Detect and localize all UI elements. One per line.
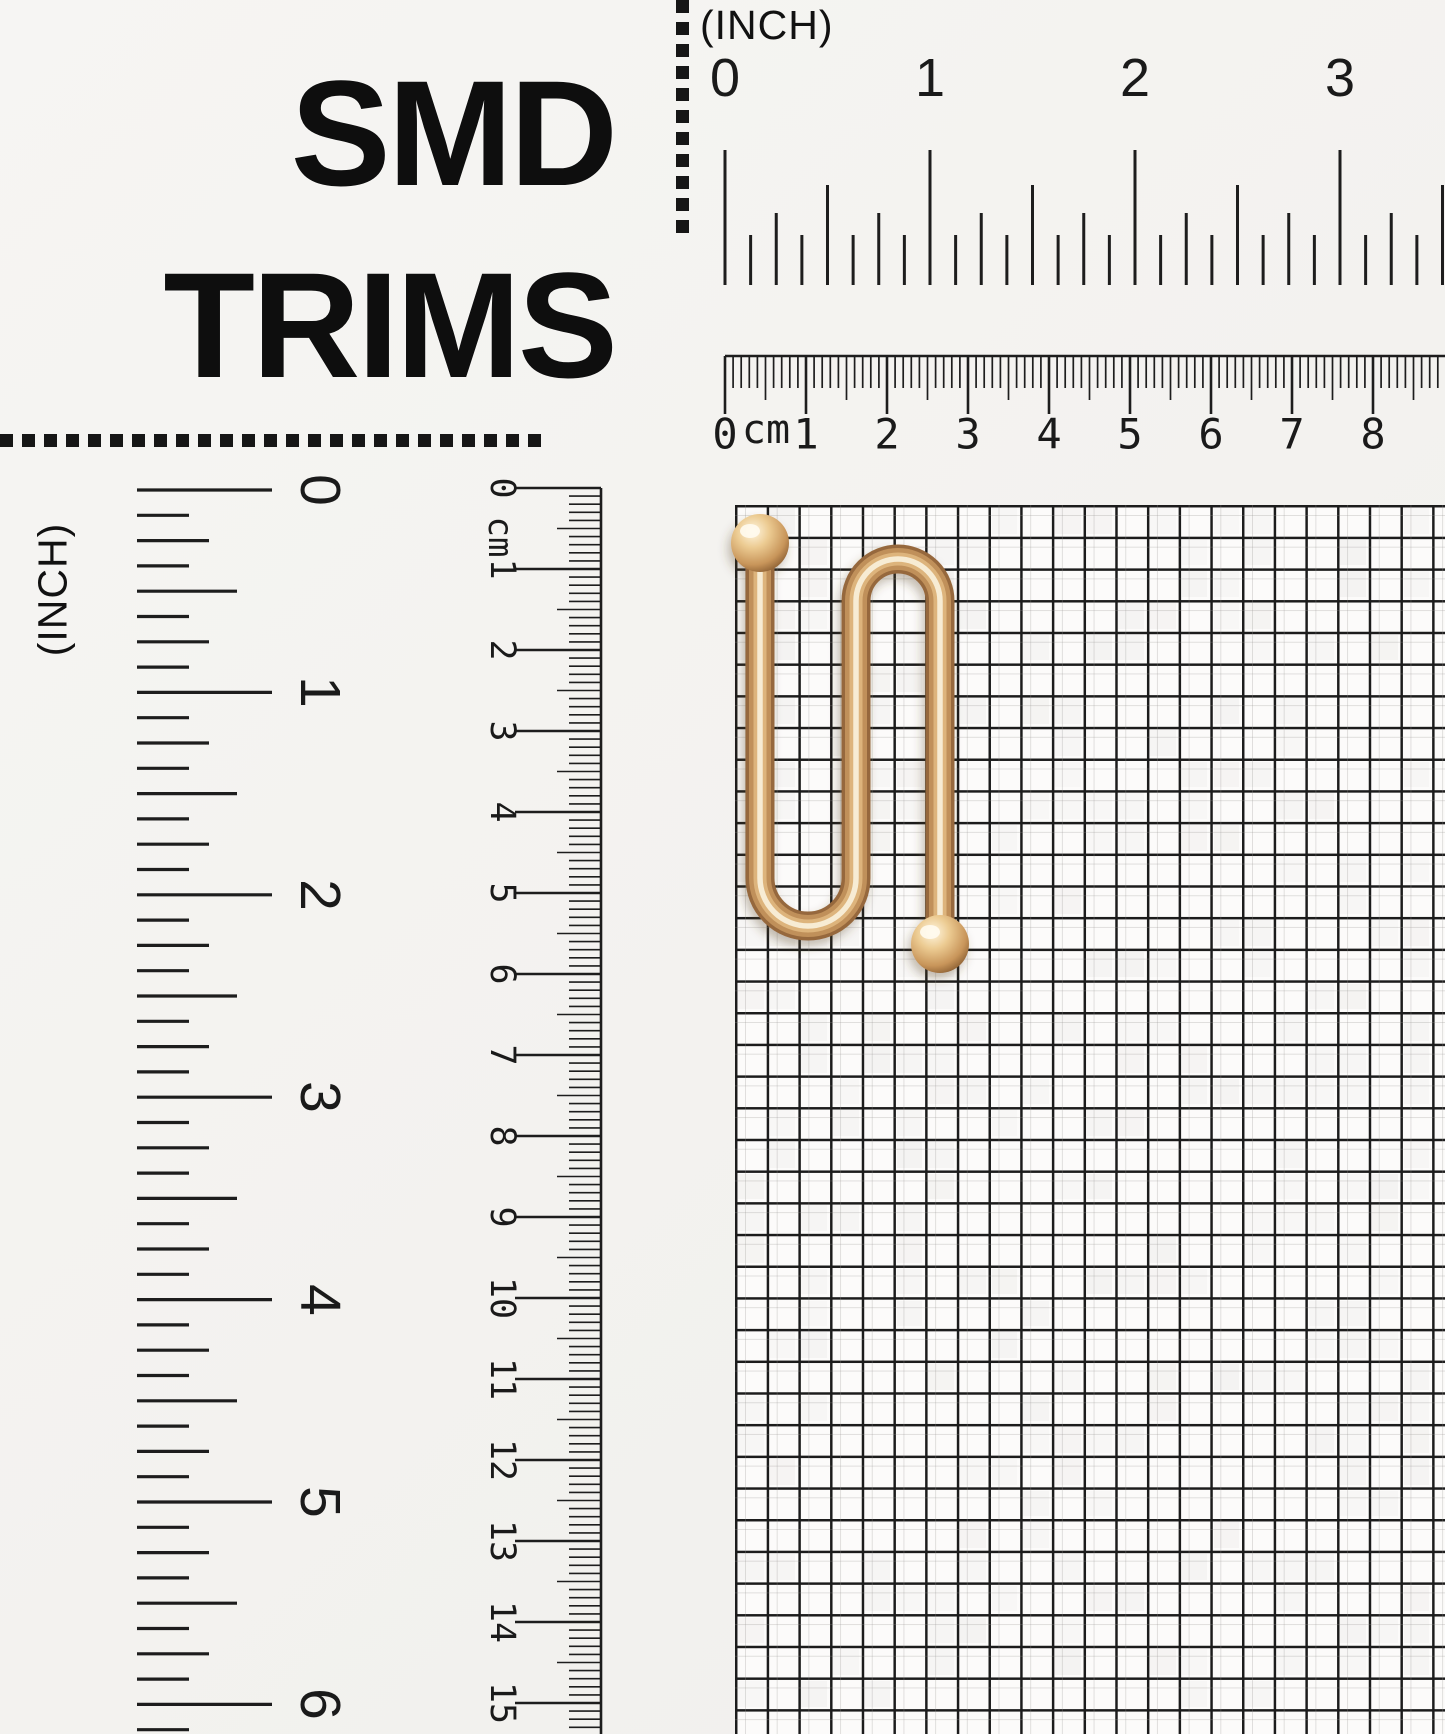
paper-shading xyxy=(770,603,796,629)
paper-shading xyxy=(1309,1427,1335,1453)
paper-shading xyxy=(1277,1586,1303,1612)
paper-shading xyxy=(770,1554,796,1580)
paper-shading xyxy=(1404,952,1430,978)
paper-shading xyxy=(1340,1396,1366,1422)
paper-shading xyxy=(770,793,796,819)
paper-shading xyxy=(833,1649,859,1675)
paper-shading xyxy=(1277,1649,1303,1675)
paper-shading xyxy=(1372,920,1398,946)
paper-shading xyxy=(928,1142,954,1168)
paper-shading xyxy=(897,1586,923,1612)
paper-shading xyxy=(1150,1015,1176,1041)
paper-shading xyxy=(1340,1079,1366,1105)
paper-shading xyxy=(1214,571,1240,597)
paper-shading xyxy=(1118,1586,1144,1612)
paper-shading xyxy=(1404,508,1430,534)
paper-shading xyxy=(1340,888,1366,914)
left-cm-number: 5 xyxy=(482,882,522,903)
paper-shading xyxy=(1214,920,1240,946)
paper-shading xyxy=(833,635,859,661)
paper-shading xyxy=(1055,730,1081,756)
paper-shading xyxy=(1277,698,1303,724)
paper-shading xyxy=(928,1618,954,1644)
paper-shading xyxy=(1309,1205,1335,1231)
paper-shading xyxy=(1245,762,1271,788)
paper-shading xyxy=(738,1396,764,1422)
paper-shading xyxy=(1404,920,1430,946)
paper-shading xyxy=(960,540,986,566)
paper-shading xyxy=(770,920,796,946)
paper-shading xyxy=(1055,1174,1081,1200)
paper-shading xyxy=(833,793,859,819)
paper-shading xyxy=(1340,1332,1366,1358)
left-cm-number: 7 xyxy=(482,1044,522,1065)
paper-shading xyxy=(1023,793,1049,819)
paper-shading xyxy=(770,1459,796,1485)
paper-shading xyxy=(1214,603,1240,629)
paper-shading xyxy=(770,508,796,534)
top-cm-number: 7 xyxy=(1279,410,1304,459)
paper-shading xyxy=(770,888,796,914)
paper-shading xyxy=(770,762,796,788)
paper-shading xyxy=(1404,1015,1430,1041)
paper-shading xyxy=(1340,1618,1366,1644)
paper-shading xyxy=(1404,1047,1430,1073)
paper-shading xyxy=(960,1269,986,1295)
paper-shading xyxy=(1118,793,1144,819)
paper-shading xyxy=(1182,1681,1208,1707)
paper-shading xyxy=(1340,1427,1366,1453)
paper-shading xyxy=(1245,1237,1271,1263)
paper-shading xyxy=(833,1110,859,1136)
paper-shading xyxy=(801,1301,827,1327)
paper-shading xyxy=(960,1554,986,1580)
paper-shading xyxy=(770,635,796,661)
paper-shading xyxy=(1150,1237,1176,1263)
paper-shading xyxy=(897,793,923,819)
paper-shading xyxy=(1245,1364,1271,1390)
paper-shading xyxy=(1372,1618,1398,1644)
paper-shading xyxy=(1245,1205,1271,1231)
paper-shading xyxy=(1340,1459,1366,1485)
paper-shading xyxy=(928,540,954,566)
paper-shading xyxy=(833,920,859,946)
paper-shading xyxy=(1340,984,1366,1010)
paper-shading xyxy=(1087,952,1113,978)
paper-shading xyxy=(833,825,859,851)
paper-shading xyxy=(738,1618,764,1644)
paper-shading xyxy=(1150,1649,1176,1675)
paper-shading xyxy=(1340,857,1366,883)
grid-paper xyxy=(735,505,1445,1734)
paper-shading xyxy=(801,1332,827,1358)
paper-shading xyxy=(1182,1269,1208,1295)
paper-shading xyxy=(865,698,891,724)
paper-shading xyxy=(928,952,954,978)
paper-shading xyxy=(897,1205,923,1231)
paper-shading xyxy=(833,698,859,724)
paper-shading xyxy=(1087,1491,1113,1517)
left-cm-number: 2 xyxy=(482,639,522,660)
paper-shading xyxy=(770,1110,796,1136)
left-cm-number: 3 xyxy=(482,720,522,741)
paper-shading xyxy=(1404,1649,1430,1675)
paper-shading xyxy=(1309,635,1335,661)
paper-shading xyxy=(1118,1269,1144,1295)
paper-shading xyxy=(1087,1269,1113,1295)
paper-shading xyxy=(1023,1427,1049,1453)
paper-shading xyxy=(1182,1649,1208,1675)
paper-shading xyxy=(1277,730,1303,756)
top-cm-unit-label: cm xyxy=(742,407,790,453)
paper-shading xyxy=(1214,698,1240,724)
photo-canvas: SMD TRIMS (INCH) (INCH) 0123 012345678cm… xyxy=(0,0,1445,1734)
paper-shading xyxy=(738,1205,764,1231)
left-cm-number: 1 xyxy=(482,558,522,579)
paper-shading xyxy=(1118,1015,1144,1041)
paper-shading xyxy=(865,825,891,851)
paper-shading xyxy=(1023,1301,1049,1327)
paper-shading xyxy=(1182,825,1208,851)
paper-shading xyxy=(1340,1237,1366,1263)
paper-shading xyxy=(1182,1554,1208,1580)
top-cm-number: 5 xyxy=(1117,410,1142,459)
top-cm-number: 3 xyxy=(955,410,980,459)
left-cm-number: 9 xyxy=(482,1206,522,1227)
paper-shading xyxy=(1340,571,1366,597)
paper-shading xyxy=(897,1237,923,1263)
paper-shading xyxy=(897,952,923,978)
paper-shading xyxy=(960,1079,986,1105)
paper-shading xyxy=(1087,1110,1113,1136)
paper-shading xyxy=(865,793,891,819)
paper-shading xyxy=(1182,762,1208,788)
paper-shading xyxy=(1340,1491,1366,1517)
paper-shading xyxy=(960,1618,986,1644)
paper-shading xyxy=(1055,698,1081,724)
paper-shading xyxy=(1245,1554,1271,1580)
paper-shading xyxy=(1404,1427,1430,1453)
paper-shading xyxy=(1372,1174,1398,1200)
paper-shading xyxy=(1277,1205,1303,1231)
paper-shading xyxy=(1309,984,1335,1010)
paper-shading xyxy=(1087,1586,1113,1612)
top-cm-number: 4 xyxy=(1036,410,1061,459)
paper-shading xyxy=(1277,1364,1303,1390)
paper-shading xyxy=(1055,762,1081,788)
paper-shading xyxy=(1118,952,1144,978)
paper-shading xyxy=(1404,1079,1430,1105)
paper-shading xyxy=(1118,635,1144,661)
paper-shading xyxy=(1214,1079,1240,1105)
paper-shading xyxy=(1118,1427,1144,1453)
paper-shading xyxy=(865,762,891,788)
left-cm-number: 12 xyxy=(482,1439,522,1481)
paper-shading xyxy=(738,984,764,1010)
left-cm-number: 8 xyxy=(482,1125,522,1146)
paper-shading xyxy=(1055,508,1081,534)
paper-shading xyxy=(960,1522,986,1548)
paper-shading xyxy=(897,1269,923,1295)
paper-shading xyxy=(928,984,954,1010)
paper-shading xyxy=(1404,1396,1430,1422)
paper-shading xyxy=(1340,1301,1366,1327)
left-cm-unit-label: cm xyxy=(480,517,520,558)
paper-shading xyxy=(1277,1079,1303,1105)
paper-shading xyxy=(1023,1491,1049,1517)
paper-shading xyxy=(1214,508,1240,534)
top-cm-number: 2 xyxy=(874,410,899,459)
paper-shading xyxy=(1277,857,1303,883)
paper-shading xyxy=(1404,1586,1430,1612)
paper-shading xyxy=(865,540,891,566)
paper-shading xyxy=(928,1364,954,1390)
paper-shading xyxy=(1055,1649,1081,1675)
paper-shading xyxy=(1214,1364,1240,1390)
paper-shading xyxy=(770,1332,796,1358)
paper-shading xyxy=(1372,1332,1398,1358)
paper-shading xyxy=(1150,1396,1176,1422)
paper-shading xyxy=(928,1586,954,1612)
paper-shading xyxy=(865,1047,891,1073)
top-cm-number: 6 xyxy=(1198,410,1223,459)
left-cm-number: 4 xyxy=(482,801,522,822)
paper-shading xyxy=(1087,1174,1113,1200)
left-cm-number: 11 xyxy=(482,1358,522,1400)
paper-shading xyxy=(1055,793,1081,819)
paper-shading xyxy=(1182,540,1208,566)
paper-shading xyxy=(1404,857,1430,883)
paper-shading xyxy=(1023,698,1049,724)
paper-shading xyxy=(928,571,954,597)
paper-shading xyxy=(992,1586,1018,1612)
paper-shading xyxy=(960,1459,986,1485)
paper-shading xyxy=(897,1110,923,1136)
paper-shading xyxy=(1404,1364,1430,1390)
paper-shading xyxy=(1372,1205,1398,1231)
paper-shading xyxy=(1087,635,1113,661)
paper-shading xyxy=(1087,1427,1113,1453)
paper-shading xyxy=(865,1586,891,1612)
paper-shading xyxy=(1404,1618,1430,1644)
left-cm-number: 6 xyxy=(482,963,522,984)
paper-shading xyxy=(1372,635,1398,661)
paper-shading xyxy=(992,508,1018,534)
paper-shading xyxy=(1372,1269,1398,1295)
paper-shading xyxy=(1055,1427,1081,1453)
paper-shading xyxy=(928,1174,954,1200)
paper-shading xyxy=(1055,1459,1081,1485)
paper-shading xyxy=(1245,1681,1271,1707)
paper-shading xyxy=(1309,1332,1335,1358)
paper-shading xyxy=(1245,508,1271,534)
paper-shading xyxy=(1404,571,1430,597)
paper-shading xyxy=(833,1079,859,1105)
paper-shading xyxy=(1214,1522,1240,1548)
paper-shading xyxy=(1055,1618,1081,1644)
paper-shading xyxy=(865,1681,891,1707)
paper-shading xyxy=(1055,1015,1081,1041)
paper-shading xyxy=(865,888,891,914)
paper-shading xyxy=(1340,1649,1366,1675)
paper-shading xyxy=(1150,730,1176,756)
paper-shading xyxy=(833,730,859,756)
paper-shading xyxy=(1150,952,1176,978)
paper-shading xyxy=(1023,635,1049,661)
paper-shading xyxy=(1404,1142,1430,1168)
left-cm-number: 13 xyxy=(482,1520,522,1562)
paper-shading xyxy=(928,1079,954,1105)
paper-shading xyxy=(1150,1364,1176,1390)
paper-shading xyxy=(865,1015,891,1041)
paper-shading xyxy=(738,1237,764,1263)
paper-shading xyxy=(992,825,1018,851)
paper-shading xyxy=(801,920,827,946)
left-cm-number: 10 xyxy=(482,1277,522,1319)
paper-shading xyxy=(1309,1554,1335,1580)
paper-shading xyxy=(1277,793,1303,819)
paper-shading xyxy=(1245,920,1271,946)
paper-shading xyxy=(992,1332,1018,1358)
paper-shading xyxy=(738,730,764,756)
paper-shading xyxy=(1277,1554,1303,1580)
paper-shading xyxy=(1245,952,1271,978)
paper-shading xyxy=(801,1015,827,1041)
paper-shading xyxy=(738,635,764,661)
paper-shading xyxy=(897,1301,923,1327)
paper-shading xyxy=(801,603,827,629)
paper-shading xyxy=(865,1554,891,1580)
paper-shading xyxy=(1087,825,1113,851)
paper-shading xyxy=(992,888,1018,914)
paper-shading xyxy=(1023,1396,1049,1422)
paper-shading xyxy=(928,762,954,788)
paper-shading xyxy=(897,667,923,693)
paper-shading xyxy=(1055,1554,1081,1580)
paper-shading xyxy=(1404,1459,1430,1485)
paper-shading xyxy=(897,1142,923,1168)
paper-shading xyxy=(1023,1079,1049,1105)
paper-shading xyxy=(738,1554,764,1580)
paper-shading xyxy=(1055,1364,1081,1390)
paper-shading xyxy=(992,1269,1018,1295)
paper-shading xyxy=(1118,603,1144,629)
paper-shading xyxy=(897,635,923,661)
paper-shading xyxy=(1023,1522,1049,1548)
paper-shading xyxy=(1340,1047,1366,1073)
paper-shading xyxy=(738,920,764,946)
paper-shading xyxy=(1214,825,1240,851)
paper-shading xyxy=(1118,1047,1144,1073)
paper-shading xyxy=(1182,793,1208,819)
paper-shading xyxy=(1245,635,1271,661)
paper-shading xyxy=(992,1110,1018,1136)
paper-shading xyxy=(1245,540,1271,566)
paper-shading xyxy=(738,1681,764,1707)
paper-shading xyxy=(801,1047,827,1073)
paper-shading xyxy=(1372,1491,1398,1517)
paper-shading xyxy=(960,1015,986,1041)
paper-shading xyxy=(1340,540,1366,566)
paper-shading xyxy=(801,1205,827,1231)
paper-shading xyxy=(738,1427,764,1453)
paper-shading xyxy=(770,1142,796,1168)
paper-shading xyxy=(1245,603,1271,629)
paper-shading xyxy=(1309,1301,1335,1327)
paper-shading xyxy=(801,1681,827,1707)
top-cm-number: 0 xyxy=(712,410,737,459)
paper-shading xyxy=(960,603,986,629)
paper-shading xyxy=(1118,825,1144,851)
paper-shading xyxy=(928,1649,954,1675)
top-cm-number: 1 xyxy=(793,410,818,459)
paper-shading xyxy=(928,1047,954,1073)
paper-shading xyxy=(801,1396,827,1422)
paper-shading xyxy=(897,1047,923,1073)
paper-shading xyxy=(1055,888,1081,914)
paper-shading xyxy=(1214,762,1240,788)
paper-shading xyxy=(1150,508,1176,534)
paper-shading xyxy=(928,888,954,914)
paper-shading xyxy=(992,1459,1018,1485)
paper-shading xyxy=(801,571,827,597)
paper-shading xyxy=(865,667,891,693)
paper-shading xyxy=(738,857,764,883)
paper-shading xyxy=(801,540,827,566)
paper-shading xyxy=(1277,1142,1303,1168)
paper-shading xyxy=(833,1205,859,1231)
paper-shading xyxy=(738,1174,764,1200)
paper-shading xyxy=(960,698,986,724)
paper-shading xyxy=(770,984,796,1010)
paper-shading xyxy=(770,698,796,724)
paper-shading xyxy=(1087,793,1113,819)
paper-shading xyxy=(1309,793,1335,819)
paper-shading xyxy=(1245,1079,1271,1105)
left-cm-number: 14 xyxy=(482,1601,522,1643)
paper-shading xyxy=(1404,1174,1430,1200)
paper-shading xyxy=(897,762,923,788)
paper-shading xyxy=(738,698,764,724)
paper-shading xyxy=(1404,762,1430,788)
left-cm-number: 15 xyxy=(482,1682,522,1724)
paper-shading xyxy=(1182,1079,1208,1105)
paper-shading xyxy=(1340,1174,1366,1200)
paper-shading xyxy=(1277,1174,1303,1200)
paper-shading xyxy=(1309,1047,1335,1073)
top-cm-number: 8 xyxy=(1360,410,1385,459)
paper-shading xyxy=(1150,603,1176,629)
paper-shading xyxy=(801,1269,827,1295)
paper-shading xyxy=(1087,508,1113,534)
left-cm-number: 0 xyxy=(482,477,522,498)
paper-shading xyxy=(1150,1269,1176,1295)
paper-shading xyxy=(1182,1047,1208,1073)
paper-shading xyxy=(1118,1110,1144,1136)
paper-shading xyxy=(1277,1015,1303,1041)
paper-shading xyxy=(1182,571,1208,597)
paper-shading xyxy=(1309,1079,1335,1105)
paper-shading xyxy=(1372,1396,1398,1422)
